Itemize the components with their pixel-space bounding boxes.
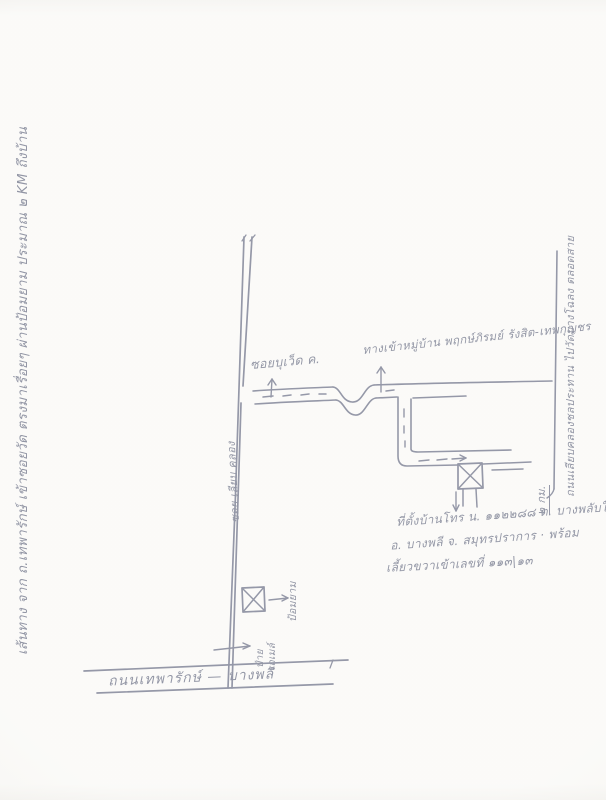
- scanned-map-page: เส้นทาง จาก ถ.เทพารักษ์ เข้าซอยวัด ตรงมา…: [0, 0, 606, 800]
- guardhouse-landmark-box-icon: [242, 587, 265, 612]
- guardhouse-right-arrow-icon: [269, 595, 288, 601]
- right-arrow-icon: [452, 455, 466, 461]
- map-drawing: [0, 0, 606, 800]
- house-down-arrow-icon: [453, 492, 459, 511]
- bus-stop-right-arrow-icon: [214, 643, 250, 650]
- center-line-dashes: [263, 390, 394, 397]
- left-margin-note: เส้นทาง จาก ถ.เทพารักษ์ เข้าซอยวัด ตรงมา…: [16, 70, 30, 655]
- right-road-label: ถนนเลียบคลองชลประทาน ไปวัดบางโฉลง ตลอดสา…: [565, 252, 577, 497]
- soi-up-arrow-icon: [268, 379, 276, 397]
- house-landmark-box-icon: [458, 463, 483, 507]
- guardhouse-label: ป้อมยาม: [288, 577, 299, 622]
- bus-stop-label-line1: ป้าย: [256, 634, 267, 668]
- village-up-arrow-icon: [377, 367, 385, 392]
- right-road: [547, 251, 557, 498]
- main-road: [253, 381, 552, 415]
- branch-road: [398, 397, 531, 470]
